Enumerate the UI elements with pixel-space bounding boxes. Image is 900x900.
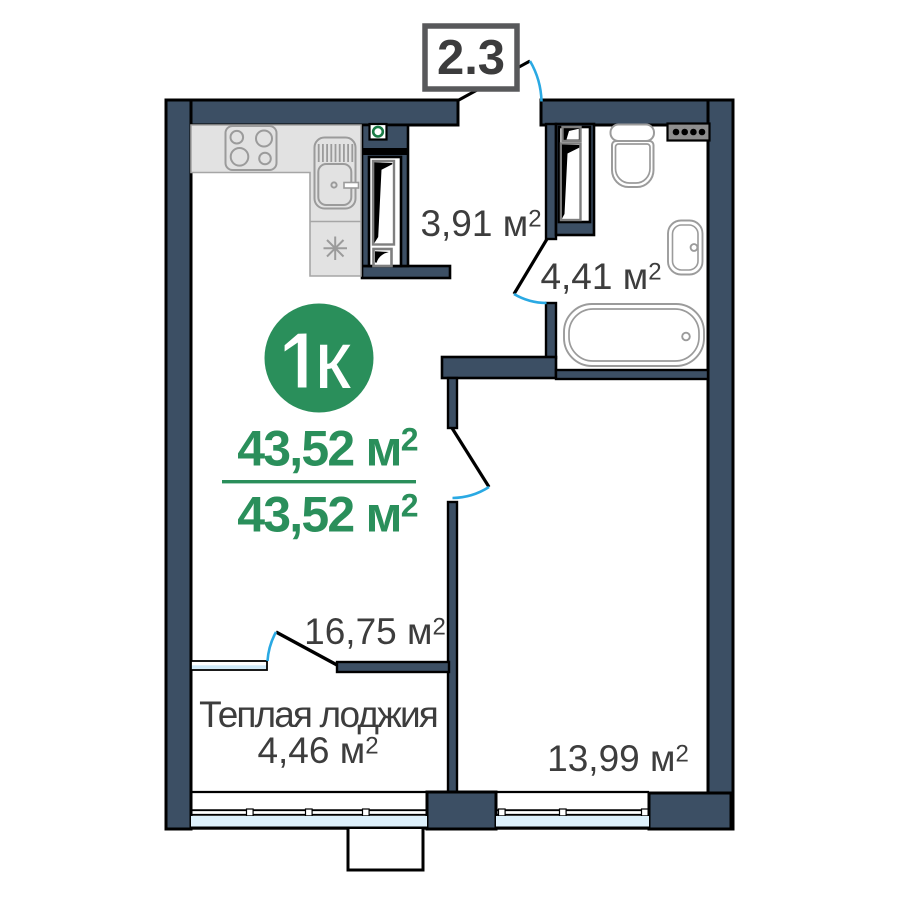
svg-text:13,99 м2: 13,99 м2 — [547, 738, 689, 779]
svg-text:4,46 м2: 4,46 м2 — [257, 730, 378, 771]
svg-text:43,52 м2: 43,52 м2 — [237, 421, 417, 477]
svg-text:4,41 м2: 4,41 м2 — [540, 256, 661, 297]
svg-text:43,52 м2: 43,52 м2 — [237, 487, 417, 543]
svg-text:3,91 м2: 3,91 м2 — [420, 203, 541, 244]
svg-text:к: к — [315, 315, 352, 406]
svg-text:16,75 м2: 16,75 м2 — [304, 611, 446, 652]
svg-text:2.3: 2.3 — [437, 31, 505, 85]
svg-text:Теплая лоджия: Теплая лоджия — [199, 694, 437, 735]
